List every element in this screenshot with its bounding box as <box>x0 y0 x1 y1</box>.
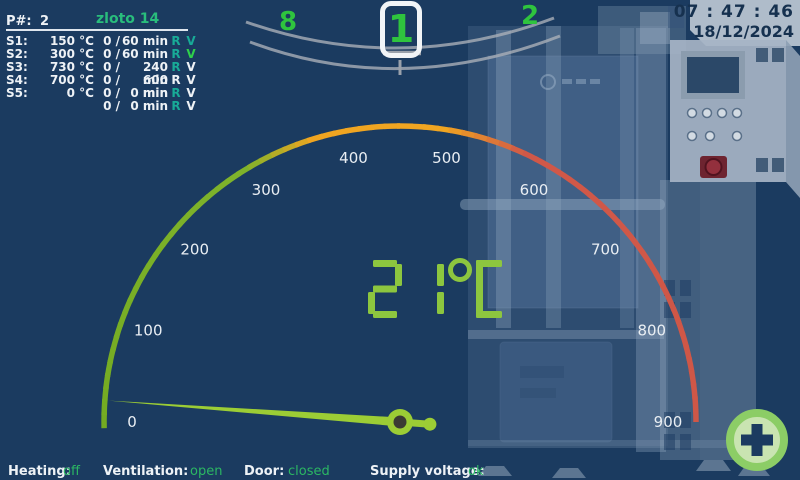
program-segment-table: S1: 150 °C 0 / 60 min R V S2: 300 °C 0 /… <box>6 35 198 113</box>
heating-label: Heating: <box>8 464 71 479</box>
door-value: closed <box>288 464 330 479</box>
program-divider <box>6 29 188 31</box>
segment-temp: 0 °C <box>32 87 94 100</box>
plus-icon <box>752 424 763 456</box>
segment-vent-toggle[interactable]: V <box>184 100 198 113</box>
selector-next-program[interactable]: 2 <box>518 1 542 31</box>
program-number-label: P#: <box>6 14 32 29</box>
clock: 07 : 47 : 46 18/12/2024 <box>674 2 794 41</box>
program-selector: 8 1 2 <box>240 0 570 80</box>
ventilation-label: Ventilation: <box>103 464 188 479</box>
clock-time: 07 : 47 : 46 <box>674 2 794 22</box>
selector-current-box[interactable]: 1 <box>380 1 422 58</box>
door-label: Door: <box>244 464 284 479</box>
furnace-feet <box>478 460 770 478</box>
segment-duration: 0 min <box>120 100 168 113</box>
program-name: zloto 14 <box>96 11 159 27</box>
program-number: 2 <box>40 14 49 29</box>
segment-id <box>6 100 32 113</box>
heating-value: off <box>63 464 80 479</box>
selector-current-program: 1 <box>385 6 417 52</box>
segment-ramp-toggle[interactable]: R <box>168 100 184 113</box>
emergency-stop-button <box>706 159 722 175</box>
segment-temp <box>32 100 94 113</box>
add-button[interactable] <box>726 409 788 471</box>
clock-date: 18/12/2024 <box>674 22 794 41</box>
ventilation-value: open <box>190 464 222 479</box>
furnace-controller-screen: 0100200300400500600700800900 P#: 2 zloto… <box>0 0 800 480</box>
segment-elapsed: 0 / <box>94 100 120 113</box>
segment-id: S5: <box>6 87 32 100</box>
panel-screen <box>687 57 739 93</box>
supply-voltage-value: ok <box>468 464 483 479</box>
selector-prev-program[interactable]: 8 <box>276 7 300 37</box>
